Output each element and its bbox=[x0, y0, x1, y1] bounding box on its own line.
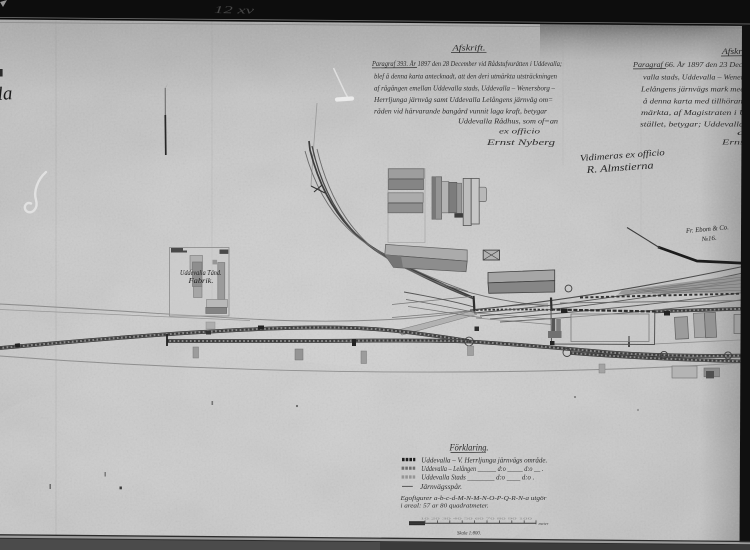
svg-text:blef å denna karta antecknadt,: blef å denna karta antecknadt, att den d… bbox=[374, 72, 557, 81]
svg-text:Ernst Nyberg: Ernst Nyberg bbox=[485, 138, 555, 147]
svg-text:å denna karta med tillhörande: å denna karta med tillhörande bbox=[643, 97, 750, 106]
svg-text:valla stads, Uddevalla – Wener: valla stads, Uddevalla – Wenersb bbox=[643, 73, 750, 82]
svg-text:№16.: №16. bbox=[700, 235, 717, 243]
svg-text:Uddevalla Tänd.: Uddevalla Tänd. bbox=[180, 269, 222, 277]
svg-text:Paragraf 66. År 1897 den 23 D: Paragraf 66. År 1897 den 23 Decem bbox=[632, 60, 750, 69]
svg-text:10 20 30 40 50 60: 10 20 30 40 50 60 70 80 90 100 bbox=[420, 518, 534, 521]
svg-text:Skala 1:800.: Skala 1:800. bbox=[457, 530, 481, 536]
svg-text:Fabrik.: Fabrik. bbox=[187, 277, 213, 285]
svg-text:Uddevalla Rådhus, som of=an: Uddevalla Rådhus, som of=an bbox=[458, 117, 558, 126]
svg-text:Uddevalla – Lelången ______ d:: Uddevalla – Lelången ______ d:o _____ d:… bbox=[421, 466, 543, 473]
svg-text:Järnvägsspår.: Järnvägsspår. bbox=[420, 484, 462, 491]
svg-text:i areal: 57 ar 80 quadratmeter: i areal: 57 ar 80 quadratmeter. bbox=[401, 502, 489, 509]
svg-text:Förklaring.: Förklaring. bbox=[449, 443, 489, 453]
svg-text:Paragraf 393. År 1897 den 28: Paragraf 393. År 1897 den 28 December vi… bbox=[371, 59, 562, 68]
svg-text:Uddevalla – V. Herrljunga järn: Uddevalla – V. Herrljunga järnvägs områd… bbox=[421, 457, 547, 464]
svg-text:ex officio: ex officio bbox=[499, 127, 540, 136]
svg-text:stället, betygar; Uddevalla s: stället, betygar; Uddevalla s bbox=[640, 120, 750, 129]
svg-text:meter: meter bbox=[539, 521, 549, 526]
svg-text:märkta, af Magistraten i Ud: märkta, af Magistraten i Ud bbox=[641, 108, 750, 117]
svg-text:la: la bbox=[0, 83, 13, 105]
svg-text:Egofigurer a-b-c-d-M-N-M-N-O-P: Egofigurer a-b-c-d-M-N-M-N-O-P-Q-R-N-a u… bbox=[399, 495, 547, 502]
svg-text:Uddevalla Stads ________ d:o _: Uddevalla Stads ________ d:o ____ d:o . bbox=[421, 475, 534, 482]
svg-text:råden vid härvarande bangård v: råden vid härvarande bangård vunnit laga… bbox=[374, 107, 547, 116]
svg-text:Afskrift.: Afskrift. bbox=[451, 44, 485, 53]
svg-text:12 xv: 12 xv bbox=[214, 5, 255, 17]
svg-text:Lelångens järnvägs mark med a: Lelångens järnvägs mark med a bbox=[640, 85, 750, 94]
svg-text:af rågången emellan Uddevalla: af rågången emellan Uddevalla stads, Udd… bbox=[374, 84, 555, 93]
svg-text:Herrljunga järnväg samt Uddeva: Herrljunga järnväg samt Uddevalla Lelång… bbox=[373, 95, 553, 104]
